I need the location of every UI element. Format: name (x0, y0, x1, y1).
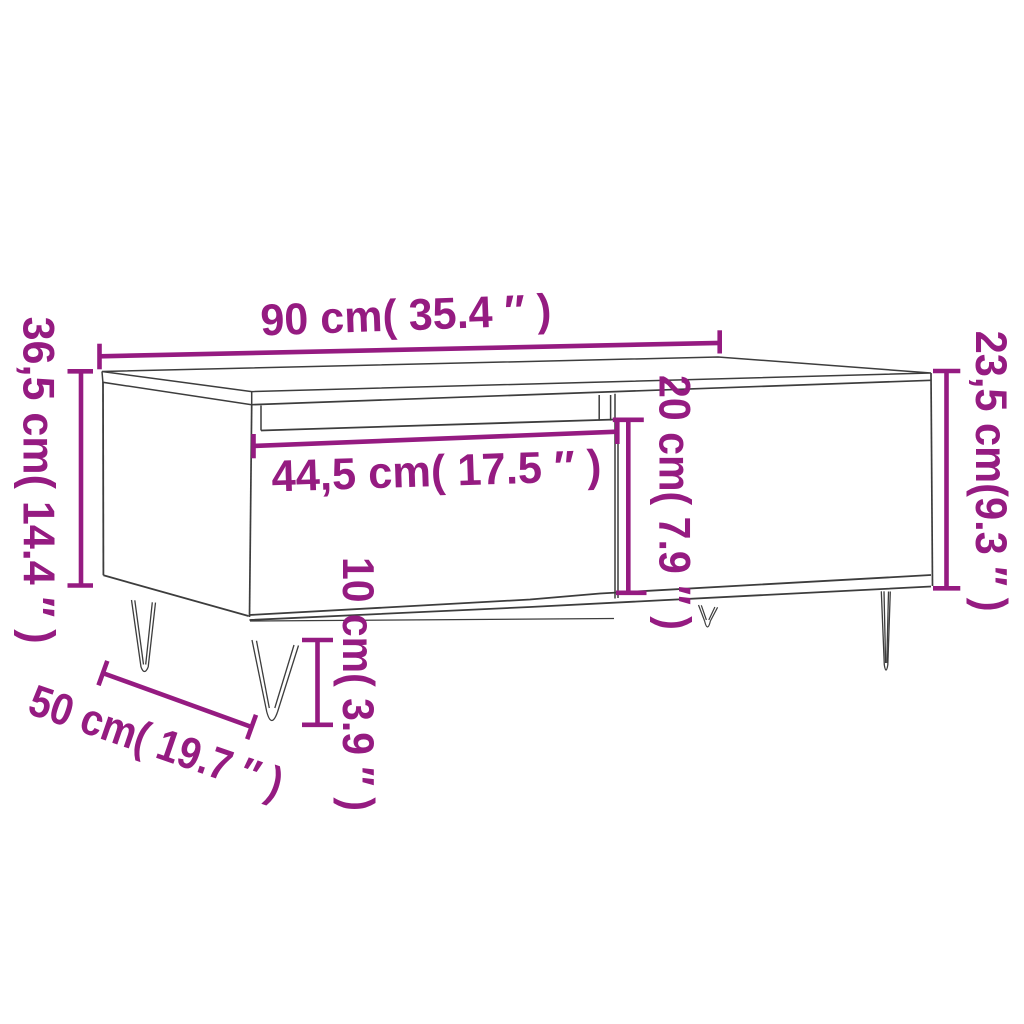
svg-text:20 cm( 7.9 ″ ): 20 cm( 7.9 ″ ) (650, 375, 699, 630)
svg-text:23,5 cm(9.3 ″ ): 23,5 cm(9.3 ″ ) (966, 331, 1015, 612)
svg-text:90 cm( 35.4 ″ ): 90 cm( 35.4 ″ ) (260, 286, 553, 346)
svg-text:50 cm( 19.7 ″ ): 50 cm( 19.7 ″ ) (23, 676, 290, 809)
svg-text:44,5 cm( 17.5 ″ ): 44,5 cm( 17.5 ″ ) (271, 442, 602, 502)
svg-text:10 cm( 3.9 ″ ): 10 cm( 3.9 ″ ) (333, 557, 382, 811)
svg-text:36,5 cm( 14.4 ″ ): 36,5 cm( 14.4 ″ ) (14, 317, 63, 644)
